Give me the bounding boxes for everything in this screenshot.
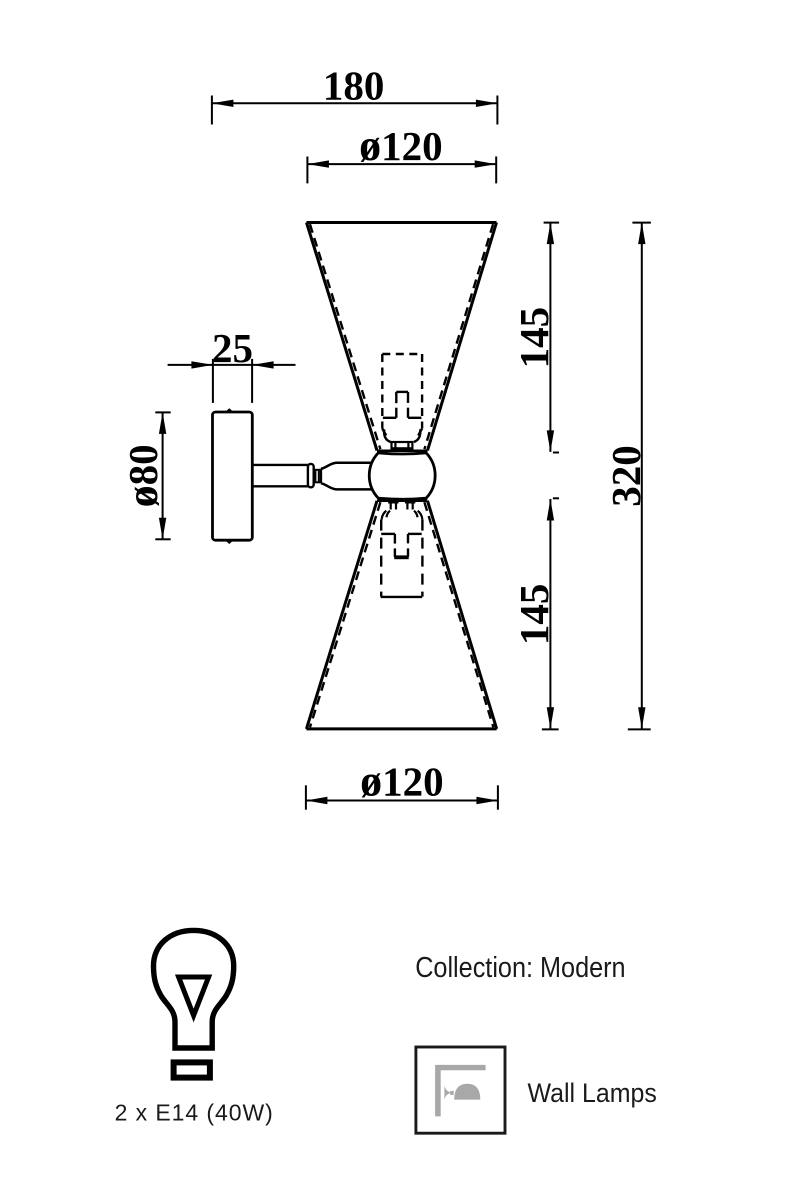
- svg-text:ø80: ø80: [118, 444, 167, 507]
- svg-text:ø120: ø120: [359, 121, 443, 170]
- svg-text:Collection: Modern: Collection: Modern: [415, 952, 625, 984]
- svg-text:ø120: ø120: [360, 757, 444, 806]
- svg-text:2 x E14 (40W): 2 x E14 (40W): [115, 1100, 273, 1126]
- svg-text:Wall Lamps: Wall Lamps: [528, 1078, 657, 1108]
- svg-text:180: 180: [323, 62, 385, 108]
